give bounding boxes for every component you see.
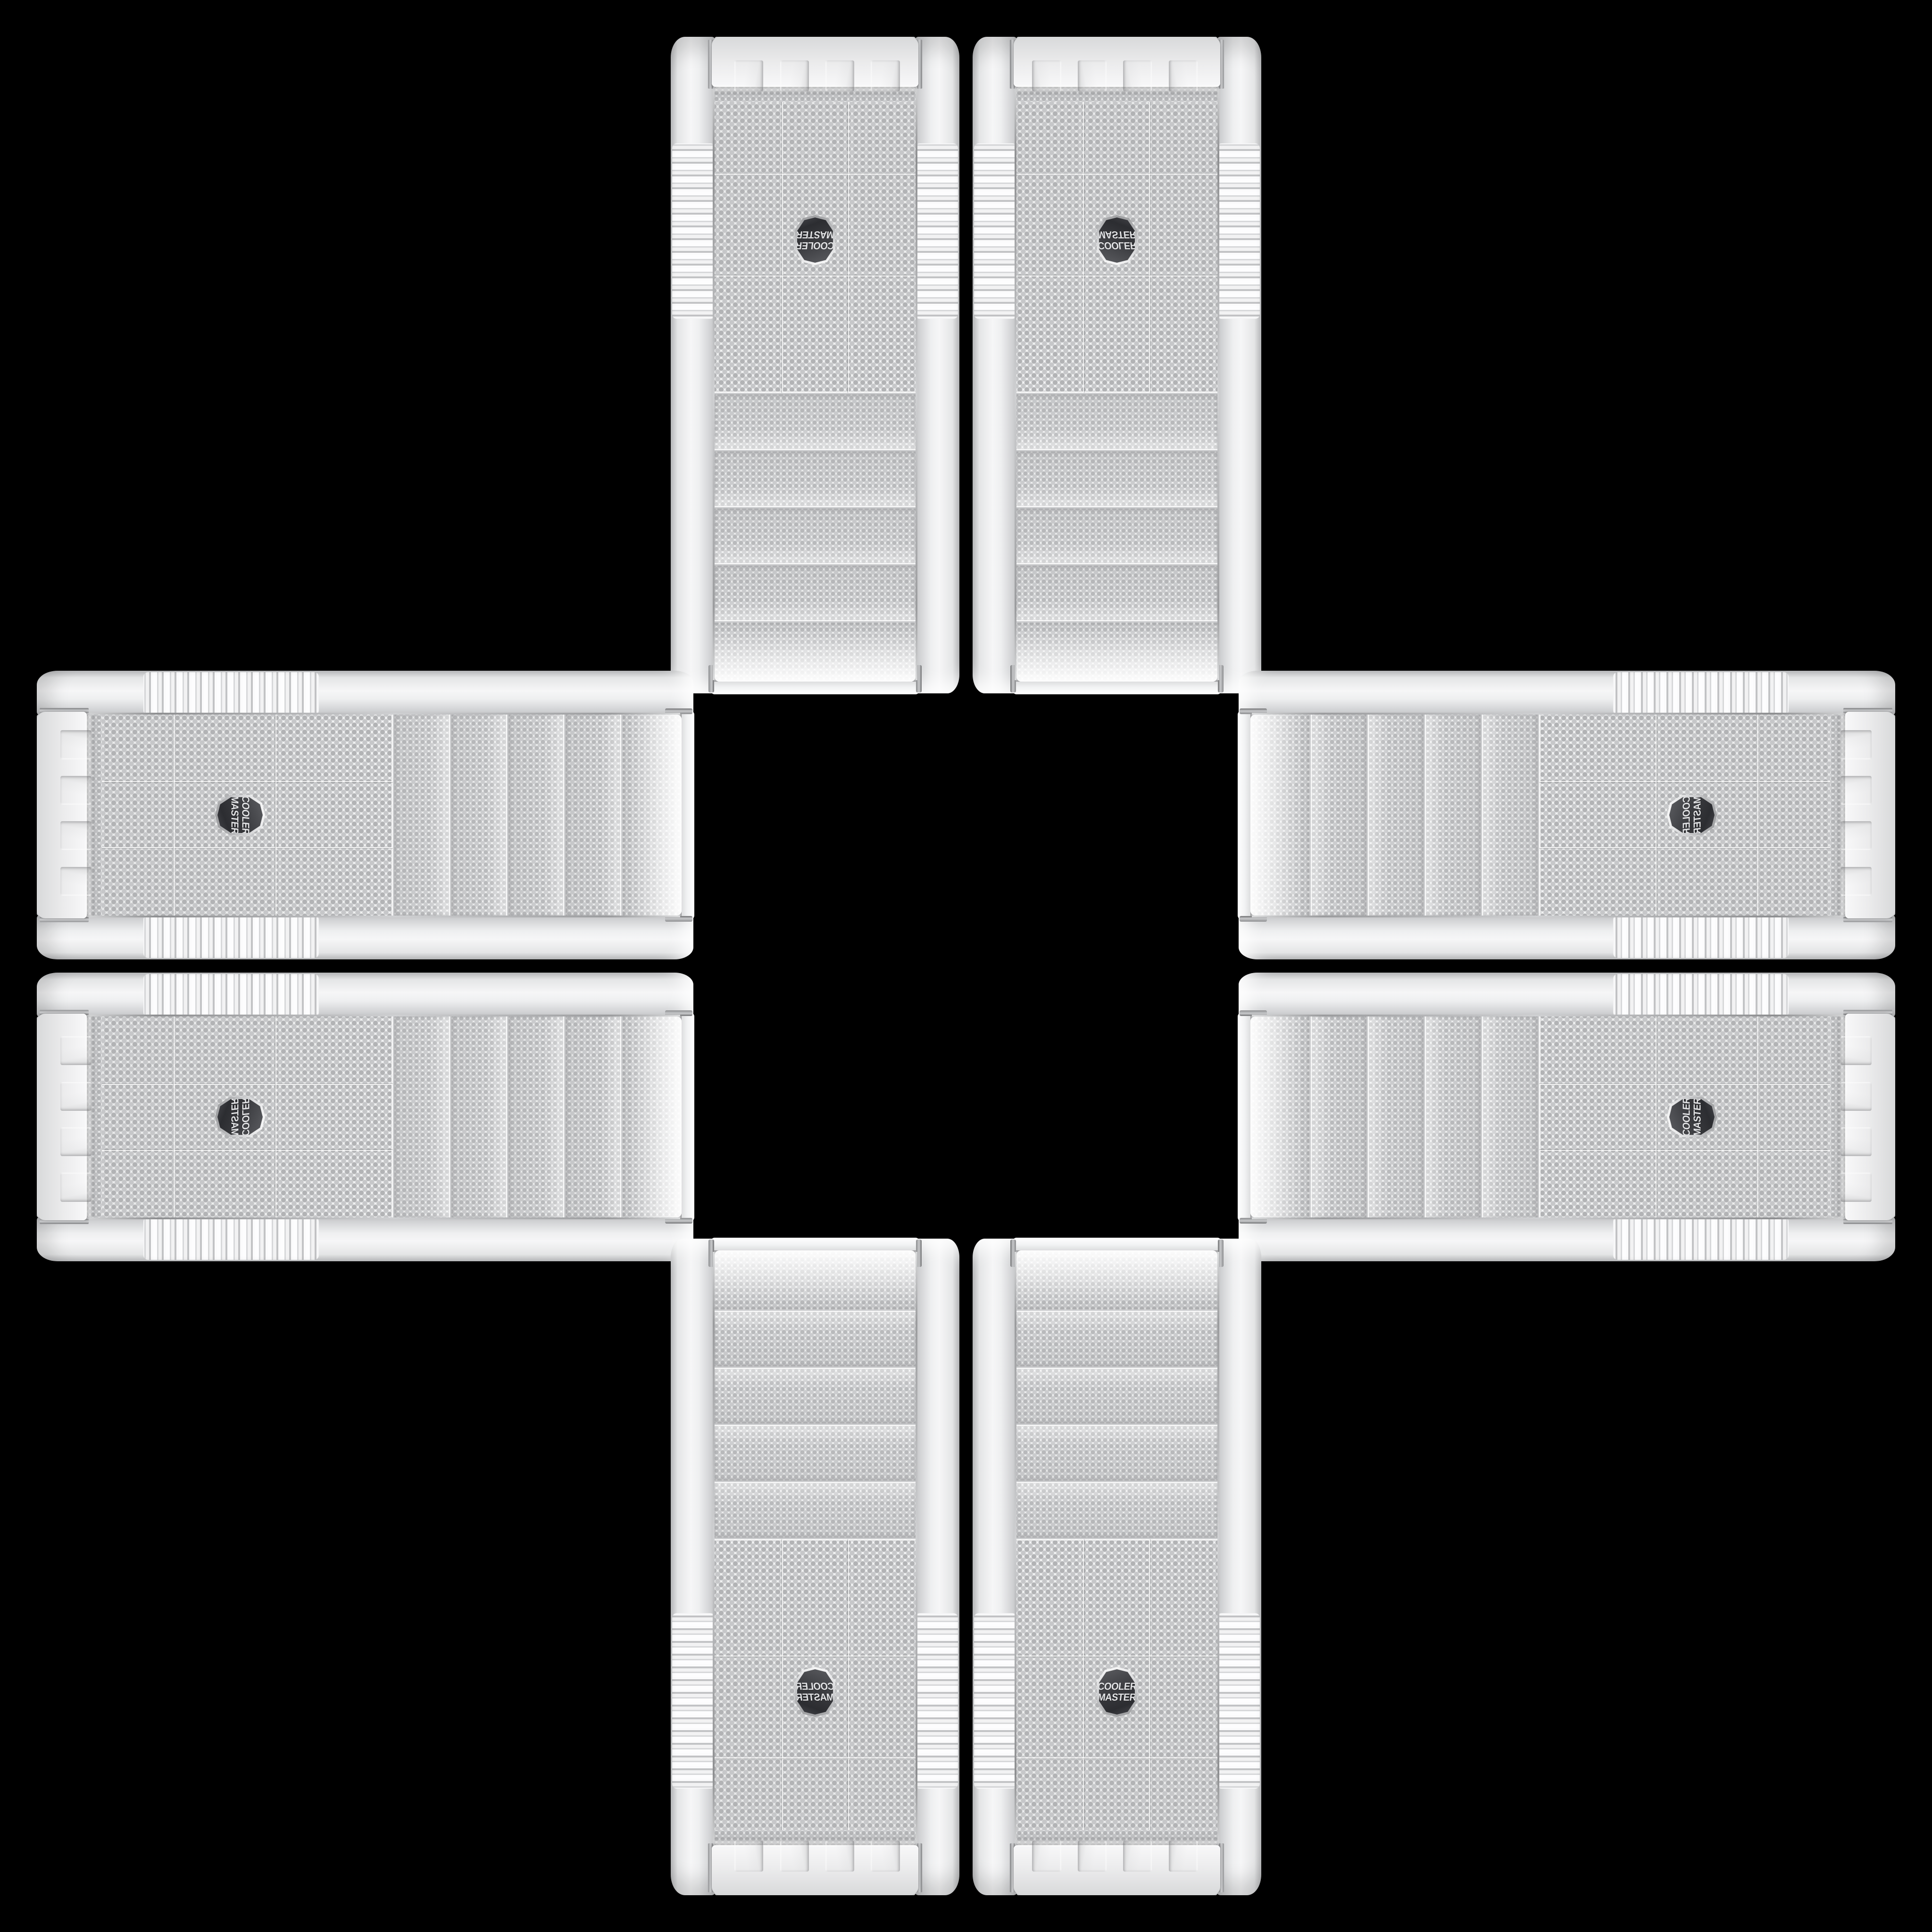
cap-notch bbox=[60, 1036, 92, 1065]
drive-bay-cover bbox=[1482, 1016, 1538, 1217]
drive-bay-cover bbox=[1368, 1016, 1424, 1217]
cap-notch bbox=[1078, 60, 1107, 92]
cooler-master-logo: COOLER MASTER bbox=[1099, 1669, 1135, 1715]
rail-grip-ribs bbox=[143, 974, 319, 1017]
drive-bay-cover bbox=[1016, 508, 1217, 564]
chrome-trim bbox=[713, 86, 715, 680]
chrome-trim bbox=[1217, 86, 1219, 680]
mesh-seam-vertical bbox=[1083, 1539, 1084, 1830]
drive-bay-cover bbox=[508, 715, 564, 916]
case-left-rail bbox=[1239, 671, 1895, 716]
mesh-seam-vertical bbox=[102, 781, 393, 782]
drive-bay-cover bbox=[715, 451, 916, 507]
rail-grip-ribs bbox=[974, 1613, 1017, 1789]
cap-notch bbox=[1169, 60, 1198, 92]
mesh-seam-vertical bbox=[1083, 102, 1084, 393]
rail-grip-ribs bbox=[1613, 915, 1789, 958]
mesh-seam-horizontal bbox=[715, 1656, 916, 1657]
drive-bay-cover bbox=[451, 1016, 507, 1217]
bottom-cap bbox=[1845, 712, 1895, 918]
cooler-master-logo-badge: COOLER MASTER bbox=[795, 215, 835, 265]
case-right-rail bbox=[671, 37, 716, 693]
case-right-rail bbox=[1216, 1239, 1261, 1895]
drive-bay-cover bbox=[566, 1016, 621, 1217]
cap-notch bbox=[1123, 1840, 1152, 1872]
mesh-seam-vertical bbox=[782, 102, 783, 393]
mesh-seam-horizontal bbox=[1016, 174, 1217, 175]
cooler-master-logo-badge: COOLER MASTER bbox=[1667, 1097, 1717, 1137]
cap-notch bbox=[1169, 1840, 1198, 1872]
chrome-trim bbox=[1252, 1217, 1846, 1219]
mesh-seam-vertical bbox=[1539, 1150, 1830, 1151]
bottom-cap bbox=[1845, 1014, 1895, 1220]
case-left-top: COOLER MASTER bbox=[37, 671, 694, 959]
cap-notch bbox=[1840, 1036, 1872, 1065]
mesh-seam-vertical bbox=[1539, 847, 1830, 848]
logo-line-2: MASTER bbox=[229, 795, 241, 835]
cap-notch bbox=[1840, 730, 1872, 759]
cap-notch bbox=[734, 60, 763, 92]
cap-notch bbox=[1840, 867, 1872, 896]
cap-notch bbox=[1840, 1127, 1872, 1156]
mesh-curved-strip bbox=[1250, 1016, 1309, 1217]
mesh-seam-horizontal bbox=[1656, 1016, 1657, 1217]
rail-grip-ribs bbox=[1613, 974, 1789, 1017]
front-top-lip bbox=[682, 711, 694, 919]
case-front-panel: COOLER MASTER bbox=[715, 1238, 916, 1895]
drive-bay-cover bbox=[1016, 1482, 1217, 1538]
drive-bay-cover bbox=[394, 715, 450, 916]
cap-notch bbox=[1078, 1840, 1107, 1872]
cap-notch bbox=[734, 1840, 763, 1872]
case-bottom-left: COOLER MASTER bbox=[671, 1238, 959, 1895]
case-bottom-right: COOLER MASTER bbox=[973, 1238, 1261, 1895]
drive-bay-cover bbox=[1016, 451, 1217, 507]
logo-line-2: MASTER bbox=[1097, 1692, 1137, 1703]
cap-notch bbox=[60, 1127, 92, 1156]
front-top-lip bbox=[1013, 1238, 1221, 1250]
mesh-seam-horizontal bbox=[1757, 1016, 1758, 1217]
mesh-seam-vertical bbox=[1149, 102, 1150, 393]
case-left-rail bbox=[973, 37, 1018, 693]
logo-line-2: MASTER bbox=[1692, 795, 1703, 835]
case-left-rail bbox=[1239, 1216, 1895, 1261]
front-top-lip bbox=[682, 1013, 694, 1221]
mesh-curved-strip bbox=[1016, 623, 1217, 682]
mesh-seam-vertical bbox=[848, 1539, 849, 1830]
cap-notch bbox=[60, 867, 92, 896]
case-front-panel: COOLER MASTER bbox=[1238, 715, 1895, 916]
case-right-rail bbox=[671, 1239, 716, 1895]
mesh-seam-horizontal bbox=[1656, 715, 1657, 916]
rail-grip-ribs bbox=[915, 143, 958, 319]
drive-bay-cover bbox=[451, 715, 507, 916]
case-right-rail bbox=[1216, 37, 1261, 693]
chrome-trim bbox=[1217, 1252, 1219, 1846]
logo-line-2: MASTER bbox=[1097, 229, 1137, 241]
rail-grip-ribs bbox=[915, 1613, 958, 1789]
logo-line-1: COOLER bbox=[240, 795, 251, 835]
mesh-seam-horizontal bbox=[1016, 1757, 1217, 1758]
rail-grip-ribs bbox=[672, 1613, 715, 1789]
case-left-bottom: COOLER MASTER bbox=[37, 973, 694, 1261]
logo-line-2: MASTER bbox=[795, 229, 835, 241]
case-right-rail bbox=[37, 914, 693, 959]
front-top-lip bbox=[1238, 711, 1250, 919]
front-top-lip bbox=[711, 682, 919, 694]
case-front-panel: COOLER MASTER bbox=[1016, 1238, 1217, 1895]
cooler-master-logo: COOLER MASTER bbox=[217, 797, 263, 833]
mesh-seam-vertical bbox=[848, 102, 849, 393]
cooler-master-logo-badge: COOLER MASTER bbox=[1667, 795, 1717, 835]
cap-notch bbox=[1032, 60, 1061, 92]
logo-line-2: MASTER bbox=[795, 1692, 835, 1703]
chrome-trim bbox=[713, 1252, 715, 1846]
cap-notch bbox=[60, 776, 92, 805]
cap-notch bbox=[825, 60, 854, 92]
case-right-top: COOLER MASTER bbox=[1238, 671, 1895, 959]
drive-bay-cover bbox=[715, 1425, 916, 1481]
drive-bay-cover bbox=[715, 508, 916, 564]
cooler-master-logo: COOLER MASTER bbox=[1669, 797, 1715, 833]
logo-line-2: MASTER bbox=[1692, 1097, 1703, 1137]
rail-grip-ribs bbox=[1613, 672, 1789, 715]
front-top-lip bbox=[1013, 682, 1221, 694]
case-front-panel: COOLER MASTER bbox=[37, 1016, 694, 1217]
drive-bay-cover bbox=[715, 1482, 916, 1538]
bottom-cap bbox=[37, 1014, 87, 1220]
cap-notch bbox=[1123, 60, 1152, 92]
mesh-seam-horizontal bbox=[1757, 715, 1758, 916]
cooler-master-logo: COOLER MASTER bbox=[217, 1099, 263, 1135]
case-left-rail bbox=[973, 1239, 1018, 1895]
drive-bay-cover bbox=[1016, 1425, 1217, 1481]
logo-line-2: MASTER bbox=[229, 1097, 241, 1137]
logo-line-1: COOLER bbox=[1097, 240, 1137, 251]
cap-notch bbox=[1840, 821, 1872, 850]
rail-grip-ribs bbox=[1217, 1613, 1260, 1789]
drive-bay-cover bbox=[1482, 715, 1538, 916]
case-front-panel: COOLER MASTER bbox=[1016, 37, 1217, 694]
cooler-master-logo-badge: COOLER MASTER bbox=[1097, 215, 1137, 265]
drive-bay-cover bbox=[1311, 1016, 1366, 1217]
rail-grip-ribs bbox=[143, 915, 319, 958]
cooler-master-logo-badge: COOLER MASTER bbox=[215, 795, 265, 835]
mesh-seam-vertical bbox=[782, 1539, 783, 1830]
drive-bay-cover bbox=[1016, 1368, 1217, 1424]
case-front-panel: COOLER MASTER bbox=[1238, 1016, 1895, 1217]
cooler-master-logo: COOLER MASTER bbox=[1099, 217, 1135, 263]
rail-grip-ribs bbox=[974, 143, 1017, 319]
mesh-seam-horizontal bbox=[275, 1016, 276, 1217]
drive-bay-cover bbox=[1016, 1311, 1217, 1366]
mesh-curved-strip bbox=[715, 623, 916, 682]
rail-grip-ribs bbox=[1217, 143, 1260, 319]
drive-bay-cover bbox=[1368, 715, 1424, 916]
mesh-seam-horizontal bbox=[1016, 275, 1217, 276]
chrome-trim bbox=[1015, 1252, 1016, 1846]
chrome-trim bbox=[86, 916, 680, 917]
bottom-cap bbox=[1014, 1845, 1220, 1895]
cap-notch bbox=[60, 821, 92, 850]
cap-notch bbox=[60, 730, 92, 759]
cap-notch bbox=[1032, 1840, 1061, 1872]
cooler-master-logo-badge: COOLER MASTER bbox=[1097, 1667, 1137, 1717]
cooler-master-logo: COOLER MASTER bbox=[797, 1669, 833, 1715]
case-left-rail bbox=[37, 1216, 693, 1261]
cap-notch bbox=[825, 1840, 854, 1872]
mesh-seam-horizontal bbox=[715, 174, 916, 175]
logo-line-1: COOLER bbox=[795, 240, 835, 251]
mesh-seam-horizontal bbox=[715, 275, 916, 276]
cap-notch bbox=[871, 1840, 899, 1872]
chrome-trim bbox=[1015, 86, 1016, 680]
chrome-trim bbox=[1252, 1015, 1846, 1016]
bottom-cap bbox=[712, 1845, 918, 1895]
rail-grip-ribs bbox=[143, 672, 319, 715]
chrome-trim bbox=[86, 1217, 680, 1219]
mesh-seam-vertical bbox=[102, 1150, 393, 1151]
chrome-trim bbox=[1252, 916, 1846, 917]
drive-bay-cover bbox=[715, 1368, 916, 1424]
mesh-seam-horizontal bbox=[715, 1757, 916, 1758]
logo-line-1: COOLER bbox=[240, 1097, 251, 1137]
rail-grip-ribs bbox=[672, 143, 715, 319]
case-right-rail bbox=[1239, 973, 1895, 1018]
cap-notch bbox=[780, 60, 809, 92]
mesh-seam-horizontal bbox=[174, 715, 175, 916]
black-background: COOLER MASTER bbox=[0, 0, 1932, 1932]
case-front-panel: COOLER MASTER bbox=[715, 37, 916, 694]
mesh-curved-strip bbox=[1250, 715, 1309, 916]
mesh-seam-horizontal bbox=[275, 715, 276, 916]
logo-line-1: COOLER bbox=[1681, 795, 1692, 835]
drive-bay-cover bbox=[715, 1311, 916, 1366]
case-front-panel: COOLER MASTER bbox=[37, 715, 694, 916]
bottom-cap bbox=[712, 37, 918, 87]
drive-bay-cover bbox=[715, 566, 916, 621]
case-top-left: COOLER MASTER bbox=[671, 37, 959, 694]
bottom-cap bbox=[37, 712, 87, 918]
cap-notch bbox=[1840, 1082, 1872, 1111]
front-top-lip bbox=[711, 1238, 919, 1250]
mesh-curved-strip bbox=[1016, 1250, 1217, 1309]
case-right-rail bbox=[1239, 914, 1895, 959]
mesh-seam-vertical bbox=[102, 847, 393, 848]
chrome-trim bbox=[86, 1015, 680, 1016]
case-left-rail bbox=[37, 671, 693, 716]
drive-bay-cover bbox=[1016, 394, 1217, 450]
case-top-right: COOLER MASTER bbox=[973, 37, 1261, 694]
drive-bay-cover bbox=[508, 1016, 564, 1217]
cooler-master-logo: COOLER MASTER bbox=[797, 217, 833, 263]
cooler-master-logo-badge: COOLER MASTER bbox=[795, 1667, 835, 1717]
case-right-bottom: COOLER MASTER bbox=[1238, 973, 1895, 1261]
mesh-seam-vertical bbox=[1149, 1539, 1150, 1830]
cap-notch bbox=[1840, 776, 1872, 805]
drive-bay-cover bbox=[394, 1016, 450, 1217]
mesh-seam-vertical bbox=[1539, 781, 1830, 782]
logo-line-1: COOLER bbox=[795, 1681, 835, 1692]
mesh-curved-strip bbox=[623, 1016, 682, 1217]
logo-line-1: COOLER bbox=[1097, 1681, 1137, 1692]
cooler-master-logo-badge: COOLER MASTER bbox=[215, 1097, 265, 1137]
front-top-lip bbox=[1238, 1013, 1250, 1221]
rail-grip-ribs bbox=[1613, 1217, 1789, 1260]
cap-notch bbox=[1840, 1173, 1872, 1201]
drive-bay-cover bbox=[715, 394, 916, 450]
mesh-curved-strip bbox=[715, 1250, 916, 1309]
case-right-rail bbox=[37, 973, 693, 1018]
mesh-seam-vertical bbox=[102, 1084, 393, 1085]
chrome-trim bbox=[916, 1252, 917, 1846]
cooler-master-logo: COOLER MASTER bbox=[1669, 1099, 1715, 1135]
mesh-seam-vertical bbox=[1539, 1084, 1830, 1085]
logo-line-1: COOLER bbox=[1681, 1097, 1692, 1137]
chrome-trim bbox=[1252, 713, 1846, 715]
rail-grip-ribs bbox=[143, 1217, 319, 1260]
drive-bay-cover bbox=[566, 715, 621, 916]
cap-notch bbox=[60, 1173, 92, 1201]
cap-notch bbox=[871, 60, 899, 92]
cap-notch bbox=[780, 1840, 809, 1872]
drive-bay-cover bbox=[1425, 715, 1481, 916]
cap-notch bbox=[60, 1082, 92, 1111]
mesh-seam-horizontal bbox=[174, 1016, 175, 1217]
mesh-seam-horizontal bbox=[1016, 1656, 1217, 1657]
drive-bay-cover bbox=[1311, 715, 1366, 916]
chrome-trim bbox=[86, 713, 680, 715]
chrome-trim bbox=[916, 86, 917, 680]
case-left-rail bbox=[914, 1239, 959, 1895]
case-left-rail bbox=[914, 37, 959, 693]
bottom-cap bbox=[1014, 37, 1220, 87]
drive-bay-cover bbox=[1016, 566, 1217, 621]
mesh-curved-strip bbox=[623, 715, 682, 916]
drive-bay-cover bbox=[1425, 1016, 1481, 1217]
